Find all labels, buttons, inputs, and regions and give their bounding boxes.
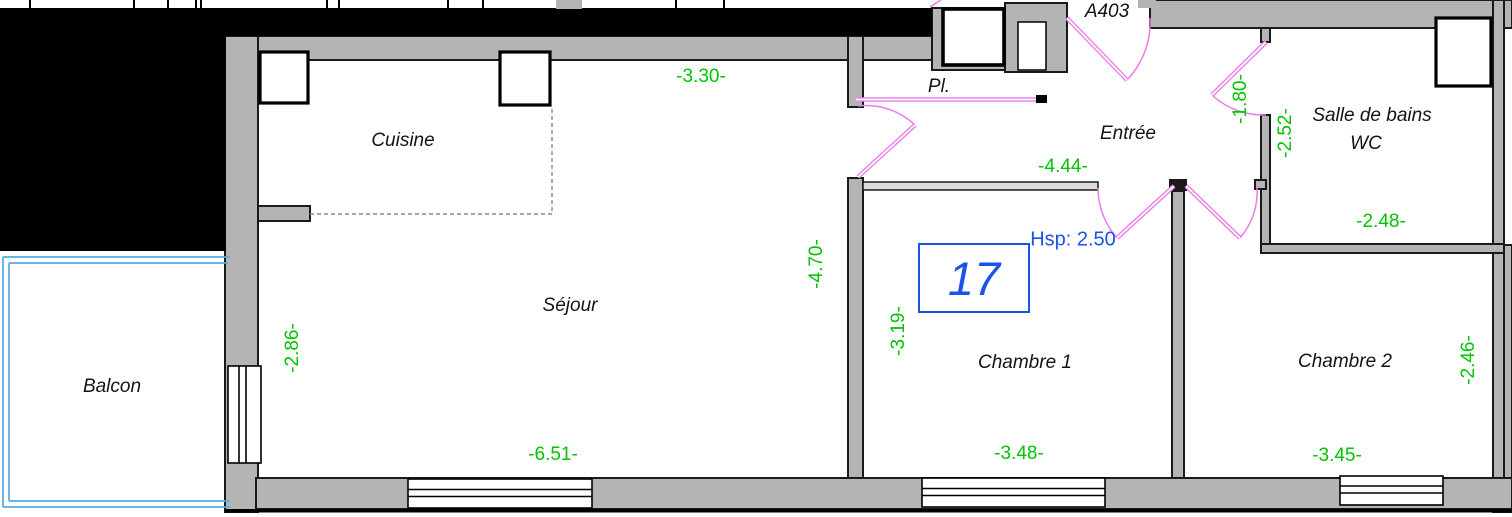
dim-bath-depth: -2.52- — [1275, 108, 1297, 158]
room-label-bathroom: Salle de bains — [1312, 105, 1431, 127]
ceiling-height-label: Hsp: 2.50 — [1030, 229, 1116, 252]
dim-bath-door: -1.80- — [1230, 74, 1252, 124]
dim-bedroom2-width: -3.45- — [1312, 445, 1362, 467]
lot-number: 17 — [948, 251, 1000, 306]
landing-door-label: A403 — [1085, 1, 1129, 23]
dim-bedroom1-depth: -3.19- — [888, 306, 910, 356]
neighbor-wall-notch — [1138, 0, 1156, 8]
dim-living-width: -6.51- — [528, 444, 578, 466]
dim-hall-length: -4.44- — [1038, 156, 1088, 178]
floor-plan: Cuisine Séjour Balcon Entrée Pl. Salle d… — [0, 0, 1512, 517]
kitchen-dashed-boundary — [310, 107, 552, 214]
room-label-kitchen: Cuisine — [371, 130, 434, 152]
dim-bedroom2-depth: -2.46- — [1458, 335, 1480, 385]
walls — [225, 0, 1512, 512]
neighbor-wall-ticks — [30, 0, 724, 9]
room-label-wc: WC — [1350, 133, 1382, 155]
room-label-living: Séjour — [543, 295, 598, 317]
dim-living-wall: -2.86- — [282, 323, 304, 373]
room-label-bedroom1: Chambre 1 — [978, 352, 1072, 374]
room-label-bedroom2: Chambre 2 — [1298, 351, 1392, 373]
floor-plan-drawing — [0, 0, 1512, 517]
room-label-closet: Pl. — [928, 76, 950, 98]
room-label-hall: Entrée — [1100, 123, 1156, 145]
bedroom1-north-thin-wall — [863, 182, 1098, 190]
dim-bedroom1-width: -3.48- — [994, 443, 1044, 465]
room-label-balcony: Balcon — [83, 376, 141, 398]
dim-living-height: -4.70- — [806, 239, 828, 289]
bottom-wall-edge — [225, 509, 1512, 513]
dim-kitchen-width: -3.30- — [676, 66, 726, 88]
lot-number-badge: 17 — [918, 243, 1030, 313]
neighbor-wall-notch — [556, 0, 582, 9]
dim-bath-width: -2.48- — [1356, 211, 1406, 233]
